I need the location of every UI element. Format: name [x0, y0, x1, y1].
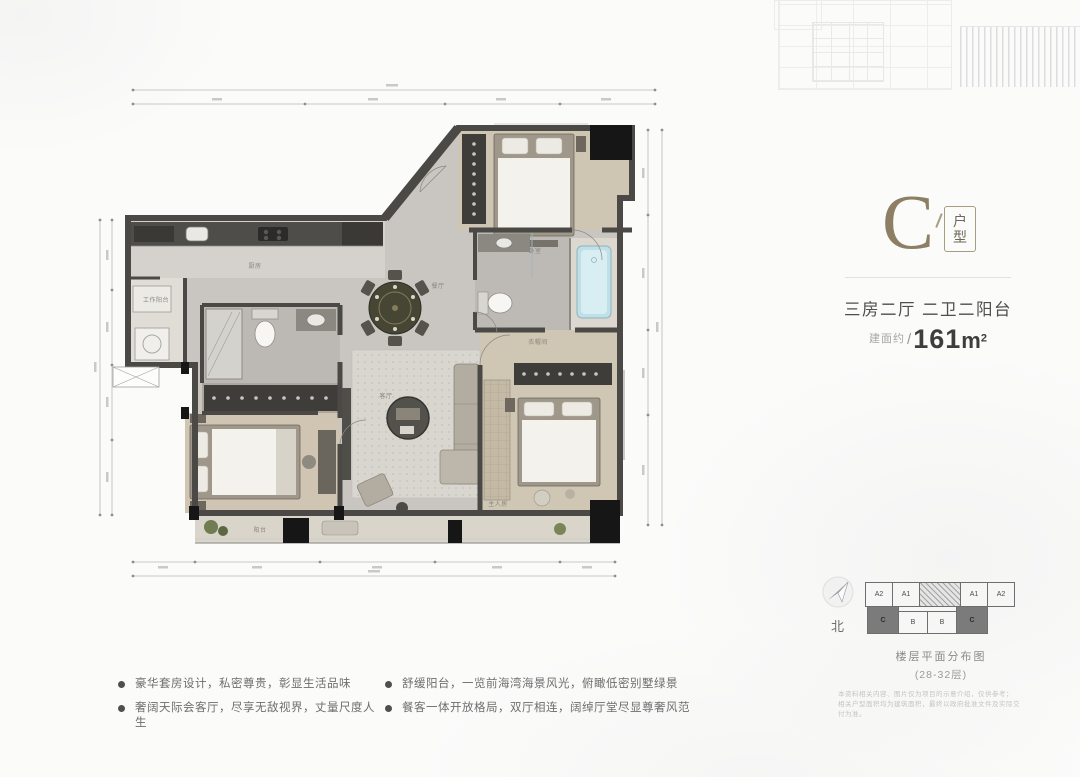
compass: 北	[818, 574, 858, 635]
bullet-dot-icon	[118, 705, 125, 712]
unit-type-bottom: 型	[953, 229, 967, 245]
label-living: 客厅	[379, 392, 392, 400]
floor-diagram-caption: 楼层平面分布图	[866, 648, 1016, 664]
north-arrow-icon	[820, 574, 856, 610]
unit-cell-c-left: C	[867, 606, 899, 634]
bullet-dot-icon	[385, 681, 392, 688]
blueprint-hatch	[960, 26, 1080, 87]
bullet-text: 餐客一体开放格局，双厅相连，阔绰厅堂尽显尊奢风范	[402, 701, 690, 716]
label-kitchen: 厨房	[248, 262, 261, 270]
floor-distribution-rows: A2 A1 A1 A2 C B B C	[866, 582, 1016, 636]
floor-diagram-range: (28-32层)	[866, 667, 1016, 682]
label-closet: 衣帽间	[528, 338, 548, 346]
room-spec: 三房二厅 二卫二阳台	[828, 296, 1028, 320]
bullet-text: 奢阔天际会客厅，尽享无敌视界，丈量尺度人生	[135, 701, 378, 731]
area-spec: 建面约/161m2	[828, 324, 1028, 355]
bullet-dot-icon	[118, 681, 125, 688]
floor-distribution: A2 A1 A1 A2 C B B C 楼层平面分布图 (28-32层)	[866, 582, 1016, 682]
ac-platform	[113, 367, 159, 387]
bullet-item: 舒缓阳台，一览前海湾海景风光，俯瞰低密别墅绿景	[385, 677, 725, 692]
kitchen-area	[130, 222, 383, 246]
label-bedroom: 卧室	[528, 247, 541, 255]
disclaimer: 本资料相关内容、图片仅为项目的示意介绍，仅供参考； 相关户型面积均为建筑面积，最…	[838, 690, 1024, 720]
bullet-item: 奢阔天际会客厅，尽享无敌视界，丈量尺度人生	[118, 701, 378, 731]
unit-type-box: 户 型	[944, 206, 976, 252]
bullet-item: 豪华套房设计，私密尊贵，彰显生活品味	[118, 677, 378, 692]
label-master-bedroom: 主人房	[488, 500, 508, 508]
floor-plan-svg: 工作阳台 厨房 餐厅 客厅 阳台 衣帽间 主人房 卧室	[90, 80, 680, 590]
floorplan-page: { "unit": { "letter": "C", "type_top": "…	[0, 0, 1080, 777]
master-bedroom	[484, 363, 612, 506]
living-room	[342, 350, 480, 514]
label-balcony: 阳台	[253, 526, 266, 534]
unit-cell-a2b: A2	[987, 582, 1015, 607]
blueprint-decoration	[775, 0, 1080, 96]
area-unit: m	[961, 328, 981, 353]
feature-bullets-left: 豪华套房设计，私密尊贵，彰显生活品味 奢阔天际会客厅，尽享无敌视界，丈量尺度人生	[118, 677, 378, 740]
label-dining: 餐厅	[431, 282, 444, 290]
unit-cell-a1: A1	[892, 582, 920, 607]
bullet-dot-icon	[385, 705, 392, 712]
divider-line	[845, 277, 1011, 278]
bullet-text: 豪华套房设计，私密尊贵，彰显生活品味	[135, 677, 351, 692]
north-label: 北	[818, 616, 858, 635]
blueprint-box	[774, 0, 822, 30]
area-superscript: 2	[981, 333, 987, 345]
floor-row-bottom: C B B C	[868, 606, 988, 634]
hall-closet	[204, 385, 338, 411]
feature-bullets-right: 舒缓阳台，一览前海湾海景风光，俯瞰低密别墅绿景 餐客一体开放格局，双厅相连，阔绰…	[385, 677, 725, 725]
unit-cell-b-right: B	[927, 611, 957, 634]
area-value: 161	[913, 324, 961, 354]
blueprint-grid-small	[812, 22, 884, 82]
unit-type-top: 户	[953, 213, 967, 229]
floor-plan: 工作阳台 厨房 餐厅 客厅 阳台 衣帽间 主人房 卧室	[90, 80, 680, 590]
bullet-text: 舒缓阳台，一览前海湾海景风光，俯瞰低密别墅绿景	[402, 677, 678, 692]
bullet-item: 餐客一体开放格局，双厅相连，阔绰厅堂尽显尊奢风范	[385, 701, 725, 716]
unit-cell-a1b: A1	[960, 582, 988, 607]
unit-cell-a2: A2	[865, 582, 893, 607]
area-prefix: 建面约	[869, 333, 905, 345]
disclaimer-line2: 相关户型面积均为建筑面积，最终以政府批准文件及实际交付为准。	[838, 700, 1024, 720]
core-hatch-cell	[919, 582, 961, 607]
area-slash: /	[907, 331, 911, 348]
unit-cell-c-right: C	[956, 606, 988, 634]
label-work-balcony: 工作阳台	[143, 296, 169, 304]
floor-row-top: A2 A1 A1 A2	[866, 582, 1015, 607]
unit-cell-b-left: B	[898, 611, 928, 634]
disclaimer-line1: 本资料相关内容、图片仅为项目的示意介绍，仅供参考；	[838, 690, 1024, 700]
